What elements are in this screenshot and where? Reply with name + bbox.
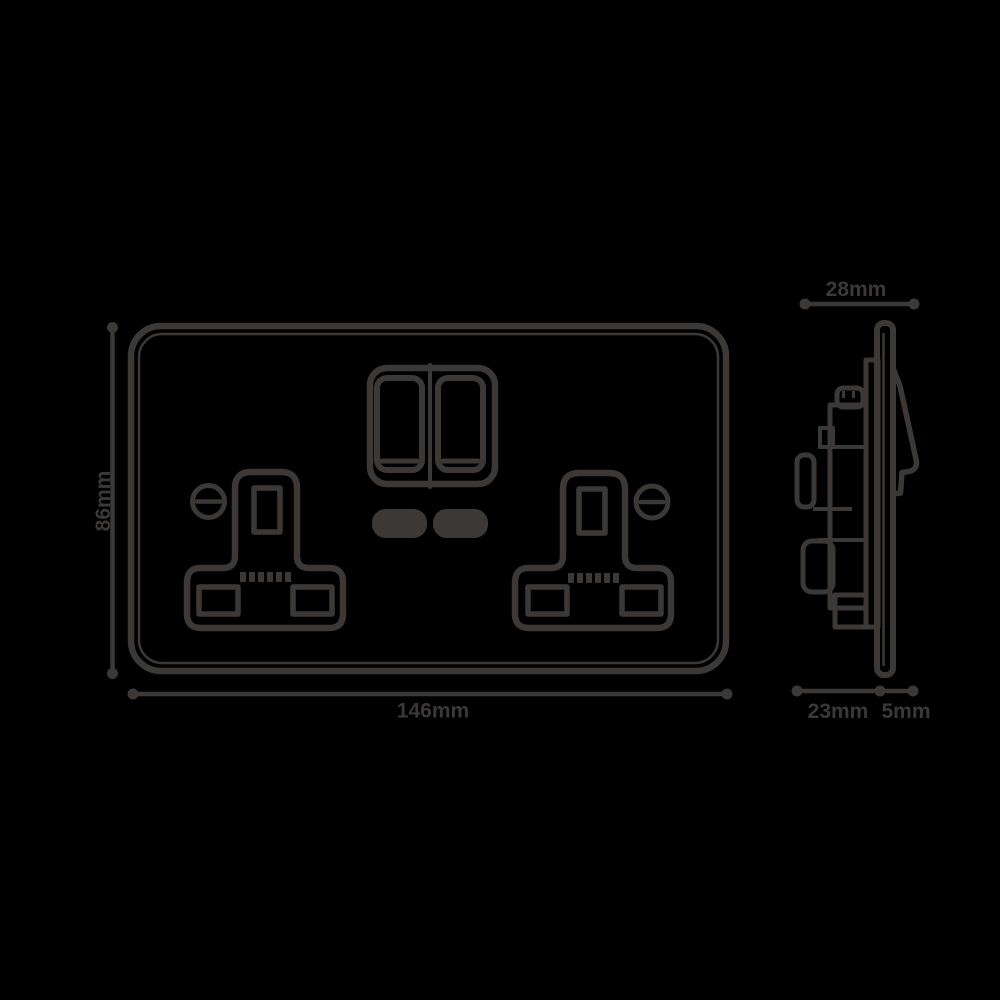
height-dimension: 86mm bbox=[92, 322, 118, 679]
right-rocker bbox=[438, 378, 483, 470]
socket-dimension-diagram: 146mm 86mm 28mm 23mm 5mm bbox=[0, 0, 1000, 1000]
left-rocker bbox=[377, 378, 422, 470]
right-socket-aperture bbox=[515, 473, 671, 628]
left-earth-slot bbox=[254, 488, 280, 532]
height-dimension-label: 86mm bbox=[92, 471, 115, 532]
left-socket-aperture bbox=[187, 472, 343, 628]
depth-back-label: 23mm bbox=[808, 700, 869, 723]
socket-marking bbox=[568, 573, 619, 583]
double-rocker-switch bbox=[370, 365, 495, 487]
side-view bbox=[797, 323, 917, 675]
depth-split-dimension: 23mm 5mm bbox=[792, 686, 931, 724]
right-live-slot bbox=[528, 587, 567, 614]
depth-total-dimension: 28mm bbox=[800, 278, 920, 310]
terminal-tab-upper bbox=[797, 455, 814, 507]
depth-total-label: 28mm bbox=[826, 278, 887, 301]
diagram-canvas: 146mm 86mm 28mm 23mm 5mm bbox=[0, 0, 1000, 1000]
backbox-bottom-step bbox=[835, 595, 866, 627]
right-neutral-slot bbox=[622, 587, 661, 614]
depth-front-label: 5mm bbox=[881, 700, 930, 723]
left-socket-outline bbox=[187, 472, 343, 628]
rocker-profile bbox=[893, 368, 917, 494]
right-earth-slot bbox=[579, 489, 605, 533]
front-view bbox=[131, 326, 726, 671]
left-neutral-slot bbox=[293, 587, 332, 614]
right-socket-outline bbox=[515, 473, 671, 628]
socket-marking bbox=[240, 572, 291, 582]
width-dimension: 146mm bbox=[128, 689, 733, 723]
left-live-slot bbox=[199, 587, 238, 614]
width-dimension-label: 146mm bbox=[397, 700, 469, 723]
backbox-step bbox=[820, 428, 833, 447]
left-indicator-window bbox=[372, 509, 427, 538]
right-indicator-window bbox=[433, 509, 488, 538]
